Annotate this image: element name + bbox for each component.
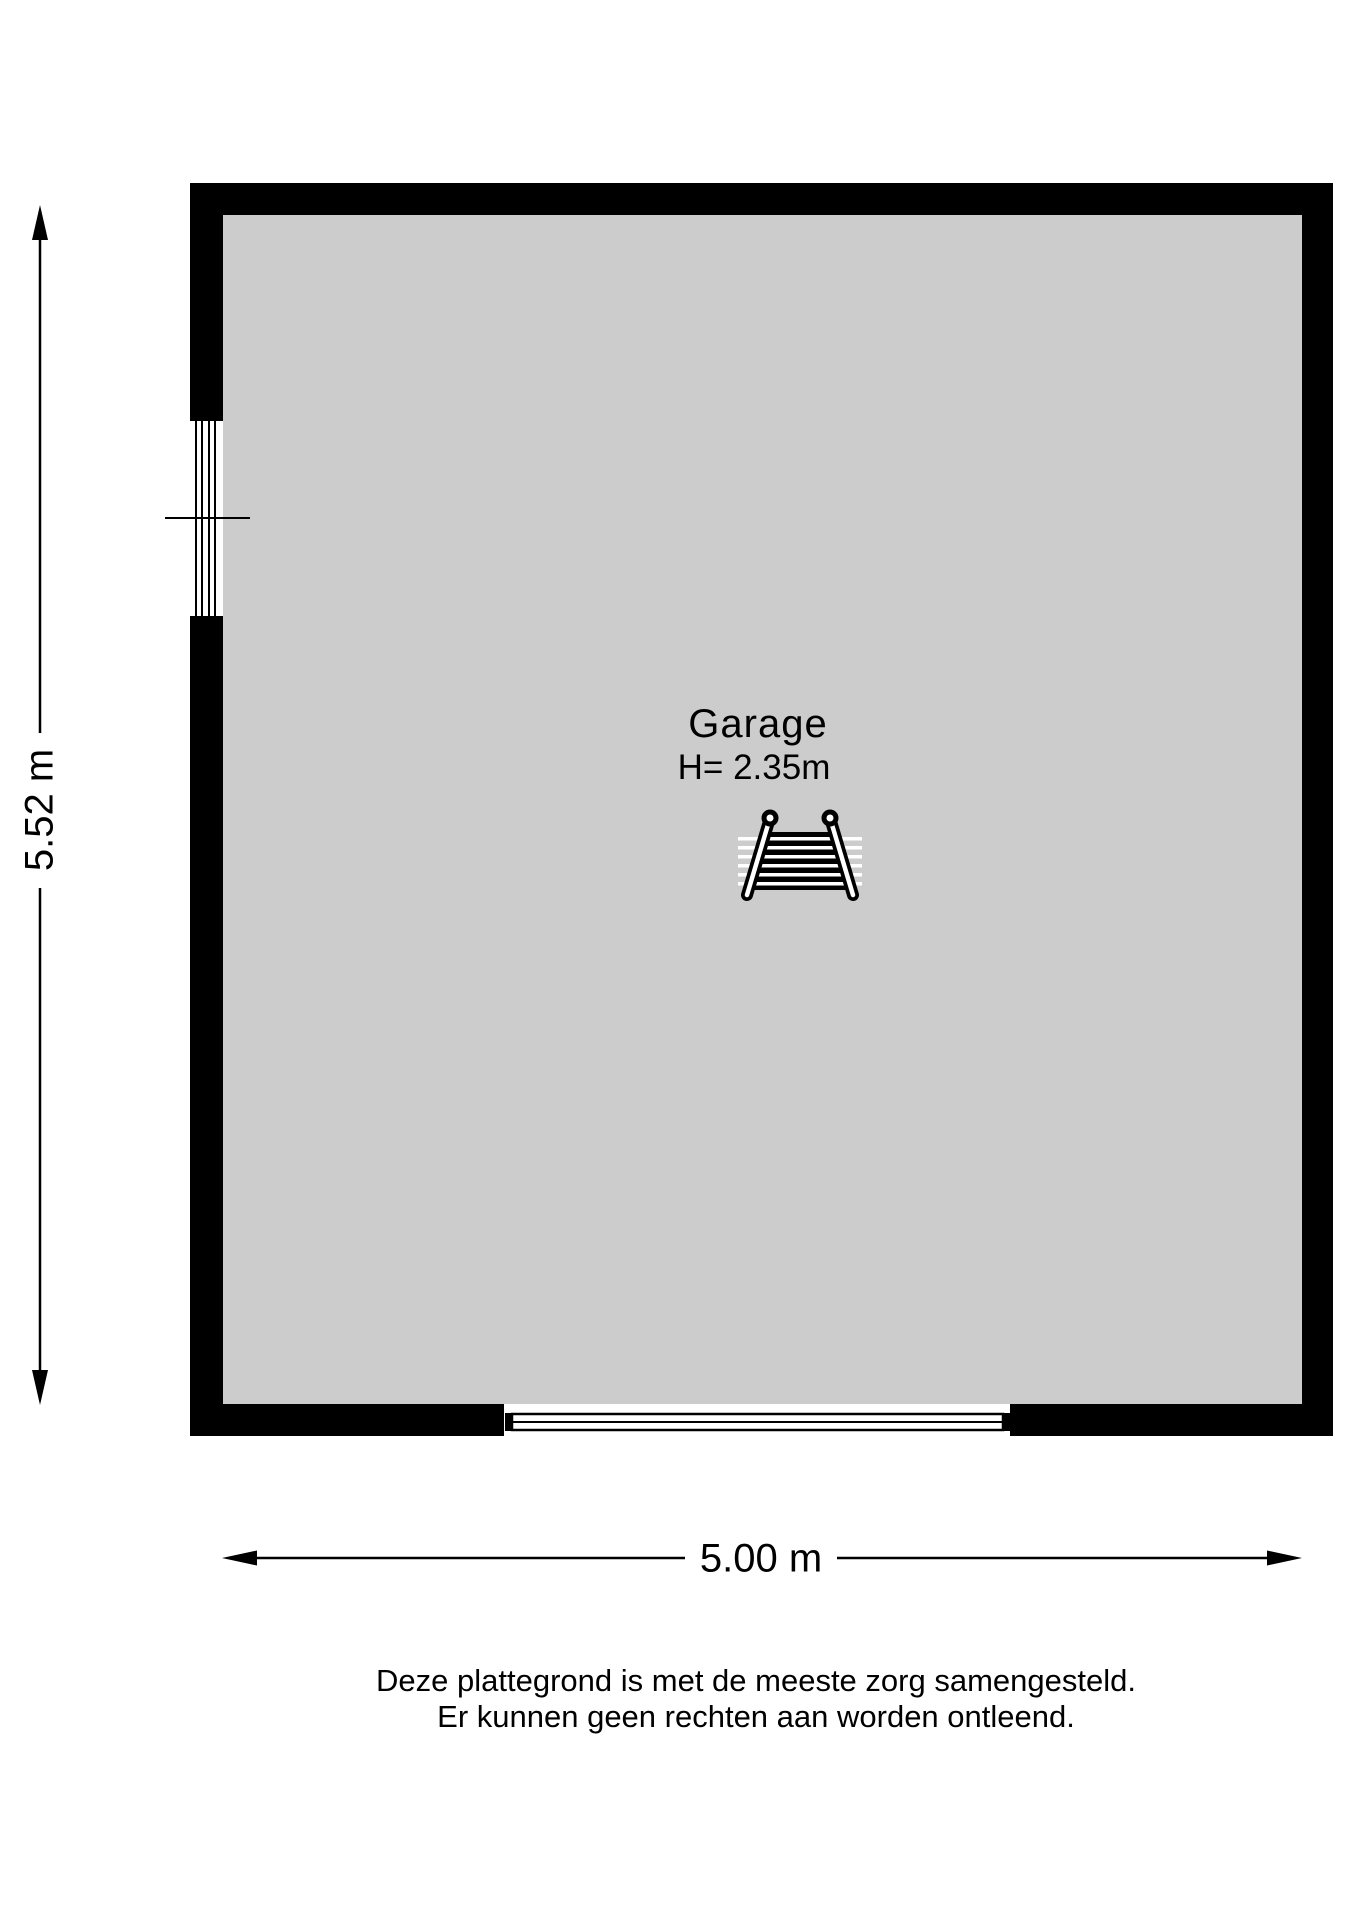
vertical-dimension-label: 5.52 m (18, 749, 63, 871)
disclaimer-line: Deze plattegrond is met de meeste zorg s… (376, 1663, 1136, 1699)
room-label: Garage (688, 702, 827, 746)
room-height-label: H= 2.35m (678, 749, 831, 788)
ladder-icon (733, 802, 867, 907)
floor-plan: Garage H= 2.35m (190, 183, 1333, 1436)
disclaimer-line: Er kunnen geen rechten aan worden ontlee… (376, 1699, 1136, 1735)
horizontal-dimension-label: 5.00 m (700, 1537, 822, 1582)
floor-plan-canvas: Garage H= 2.35m (0, 0, 1358, 1920)
garage-door (502, 1407, 1014, 1439)
window-center-line (165, 517, 250, 519)
disclaimer: Deze plattegrond is met de meeste zorg s… (376, 1663, 1136, 1735)
